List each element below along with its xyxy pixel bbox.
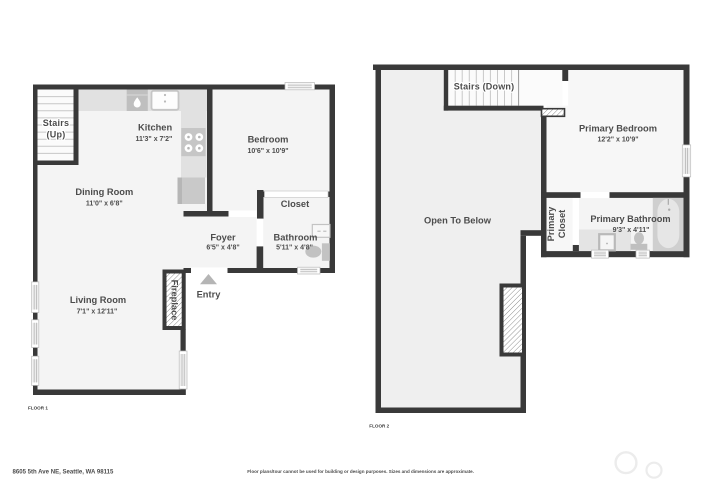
svg-text:FLOOR 1: FLOOR 1 (28, 405, 48, 410)
svg-text:PrimaryCloset: PrimaryCloset (546, 206, 567, 241)
svg-text:Kitchen: Kitchen (138, 122, 172, 132)
svg-text:8605 5th Ave NE, Seattle, WA 9: 8605 5th Ave NE, Seattle, WA 98115 (13, 469, 114, 475)
svg-text:Foyer: Foyer (210, 233, 236, 243)
svg-text:FLOOR 2: FLOOR 2 (369, 424, 389, 429)
svg-text:Closet: Closet (281, 199, 309, 209)
svg-text:9'3" x 4'11": 9'3" x 4'11" (613, 227, 650, 234)
svg-text:Primary Bedroom: Primary Bedroom (579, 123, 657, 133)
svg-text:11'0" x 6'8": 11'0" x 6'8" (86, 201, 123, 208)
svg-text:Dining Room: Dining Room (75, 187, 133, 197)
svg-text:7'1" x 12'11": 7'1" x 12'11" (77, 309, 118, 316)
svg-text:Entry: Entry (197, 290, 222, 300)
svg-text:Bedroom: Bedroom (248, 135, 289, 145)
svg-text:Stairs (Down): Stairs (Down) (454, 82, 515, 92)
svg-text:Primary Bathroom: Primary Bathroom (590, 214, 670, 224)
svg-text:Bathroom: Bathroom (274, 233, 318, 243)
svg-text:Open To Below: Open To Below (424, 215, 492, 225)
svg-text:Floor plans/tour cannot be use: Floor plans/tour cannot be used for buil… (247, 469, 474, 474)
svg-text:Living Room: Living Room (70, 295, 126, 305)
svg-text:6'5" x 4'8": 6'5" x 4'8" (206, 244, 239, 251)
svg-text:(Up): (Up) (47, 129, 66, 139)
svg-text:Stairs: Stairs (43, 118, 70, 128)
svg-text:10'6" x 10'9": 10'6" x 10'9" (247, 148, 288, 155)
svg-text:11'3" x 7'2": 11'3" x 7'2" (135, 136, 172, 143)
svg-text:Fireplace: Fireplace (170, 280, 180, 321)
svg-text:12'2" x 10'9": 12'2" x 10'9" (597, 136, 638, 143)
svg-text:5'11" x 4'8": 5'11" x 4'8" (276, 244, 313, 251)
